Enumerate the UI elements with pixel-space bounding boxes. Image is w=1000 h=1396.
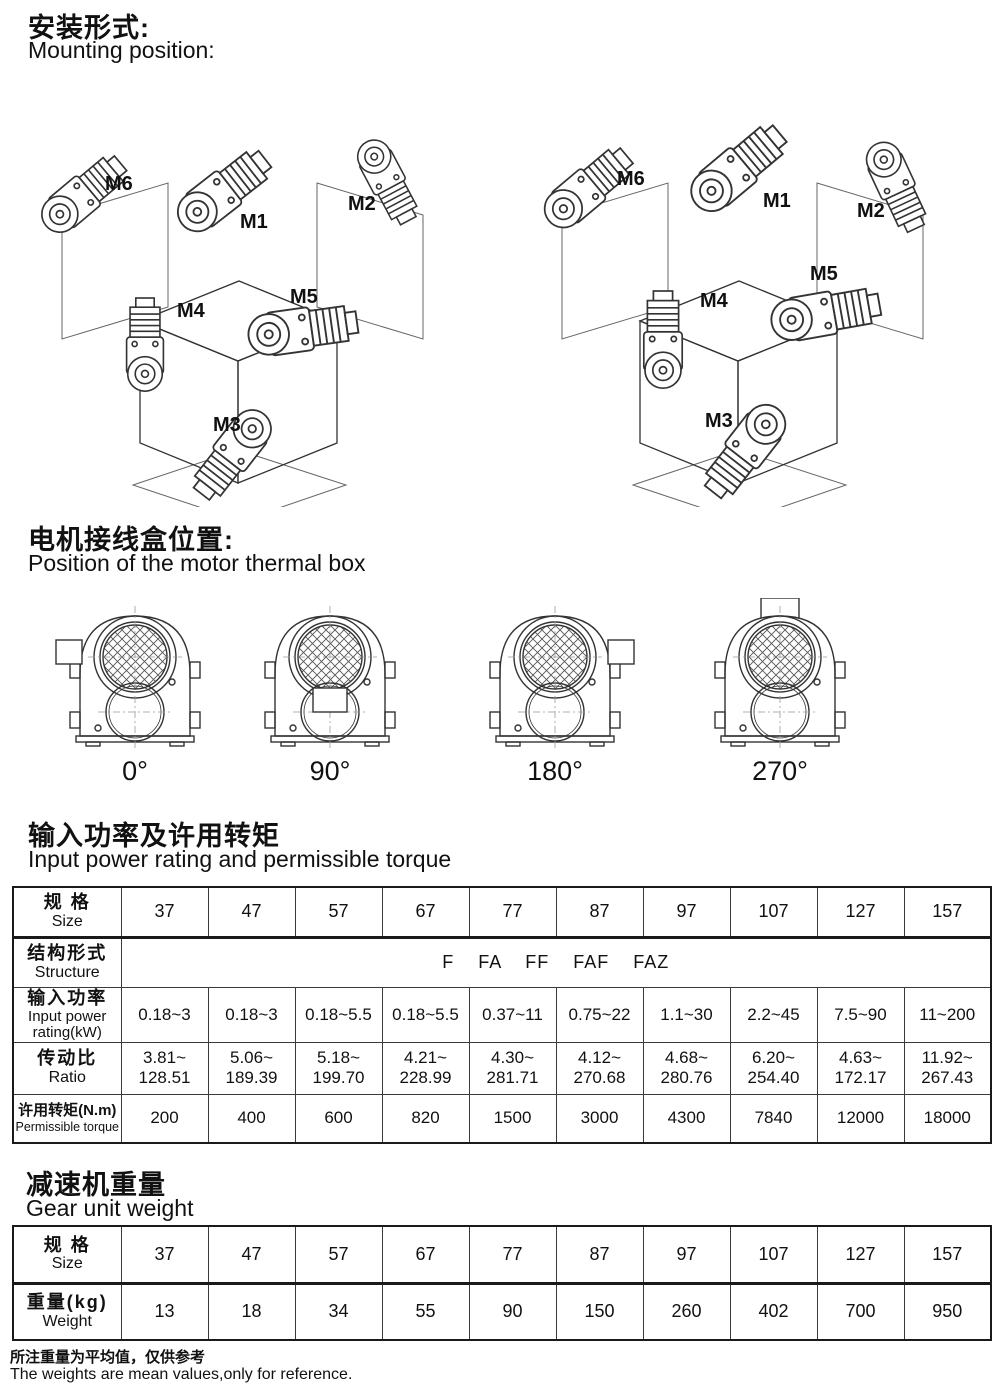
- ratio-cell: 4.63~172.17: [817, 1042, 904, 1094]
- row-header-ratio: 传动比 Ratio: [13, 1042, 121, 1094]
- size-cell: 57: [295, 1226, 382, 1283]
- power-table-title-en: Input power rating and permissible torqu…: [28, 846, 451, 873]
- table-row: 结构形式 Structure F FA FF FAF FAZ: [13, 937, 991, 987]
- weight-cell: 90: [469, 1283, 556, 1340]
- mounting-label-m3: M3: [213, 414, 241, 436]
- mounting-label-m1: M1: [240, 211, 268, 233]
- weight-cell: 402: [730, 1283, 817, 1340]
- motor-view-270: [695, 598, 865, 748]
- footnote-zh: 所注重量为平均值，仅供参考: [10, 1346, 205, 1367]
- size-cell: 57: [295, 887, 382, 937]
- power-cell: 0.37~11: [469, 987, 556, 1042]
- angle-label-180: 180°: [470, 756, 640, 787]
- row-header-size: 规 格 Size: [13, 887, 121, 937]
- row-header-torque: 许用转矩(N.m) Permissible torque: [13, 1094, 121, 1143]
- ratio-cell: 4.21~228.99: [382, 1042, 469, 1094]
- torque-cell: 1500: [469, 1094, 556, 1143]
- terminal-box-icon: [608, 640, 634, 664]
- size-cell: 77: [469, 1226, 556, 1283]
- footnote-en: The weights are mean values,only for ref…: [10, 1366, 352, 1384]
- size-cell: 97: [643, 1226, 730, 1283]
- torque-cell: 7840: [730, 1094, 817, 1143]
- size-cell: 67: [382, 887, 469, 937]
- motor-view-180: [470, 598, 640, 748]
- table-row: 输入功率 Input power rating(kW) 0.18~3 0.18~…: [13, 987, 991, 1042]
- size-cell: 37: [121, 887, 208, 937]
- terminal-box-icon: [56, 640, 82, 664]
- ratio-cell: 4.12~270.68: [556, 1042, 643, 1094]
- size-cell: 47: [208, 887, 295, 937]
- torque-cell: 400: [208, 1094, 295, 1143]
- torque-cell: 600: [295, 1094, 382, 1143]
- mounting-label-m2: M2: [348, 193, 376, 215]
- structure-value: F FA FF FAF FAZ: [121, 937, 991, 987]
- motor-view-0: [50, 598, 220, 748]
- size-cell: 47: [208, 1226, 295, 1283]
- power-cell: 0.18~5.5: [382, 987, 469, 1042]
- power-cell: 0.18~3: [208, 987, 295, 1042]
- size-cell: 37: [121, 1226, 208, 1283]
- size-cell: 107: [730, 887, 817, 937]
- size-cell: 87: [556, 887, 643, 937]
- size-cell: 157: [904, 887, 991, 937]
- ratio-cell: 4.30~281.71: [469, 1042, 556, 1094]
- gearmotor-icon: [127, 298, 164, 391]
- thermal-title-en: Position of the motor thermal box: [28, 550, 366, 577]
- size-cell: 127: [817, 1226, 904, 1283]
- weight-cell: 150: [556, 1283, 643, 1340]
- ratio-cell: 3.81~128.51: [121, 1042, 208, 1094]
- torque-cell: 12000: [817, 1094, 904, 1143]
- weight-cell: 55: [382, 1283, 469, 1340]
- ratio-cell: 5.18~199.70: [295, 1042, 382, 1094]
- row-header-size: 规 格 Size: [13, 1226, 121, 1283]
- mounting-label-m5: M5: [290, 286, 318, 308]
- ratio-cell: 6.20~254.40: [730, 1042, 817, 1094]
- size-cell: 67: [382, 1226, 469, 1283]
- size-cell: 157: [904, 1226, 991, 1283]
- table-row: 许用转矩(N.m) Permissible torque 200 400 600…: [13, 1094, 991, 1143]
- torque-cell: 200: [121, 1094, 208, 1143]
- row-header-structure: 结构形式 Structure: [13, 937, 121, 987]
- mounting-label-m2: M2: [857, 200, 885, 222]
- ratio-cell: 5.06~189.39: [208, 1042, 295, 1094]
- power-cell: 2.2~45: [730, 987, 817, 1042]
- row-header-input-power: 输入功率 Input power rating(kW): [13, 987, 121, 1042]
- table-row: 规 格 Size 37 47 57 67 77 87 97 107 127 15…: [13, 1226, 991, 1283]
- power-cell: 11~200: [904, 987, 991, 1042]
- ratio-cell: 4.68~280.76: [643, 1042, 730, 1094]
- torque-cell: 3000: [556, 1094, 643, 1143]
- mounting-label-m4: M4: [700, 290, 729, 312]
- weight-cell: 18: [208, 1283, 295, 1340]
- torque-cell: 18000: [904, 1094, 991, 1143]
- power-cell: 0.75~22: [556, 987, 643, 1042]
- weight-cell: 950: [904, 1283, 991, 1340]
- weight-table: 规 格 Size 37 47 57 67 77 87 97 107 127 15…: [12, 1225, 992, 1341]
- mounting-label-m6: M6: [617, 168, 645, 190]
- weight-cell: 260: [643, 1283, 730, 1340]
- power-table: 规 格 Size 37 47 57 67 77 87 97 107 127 15…: [12, 886, 992, 1144]
- table-row: 重量(kg) Weight 13 18 34 55 90 150 260 402…: [13, 1283, 991, 1340]
- table-row: 传动比 Ratio 3.81~128.51 5.06~189.39 5.18~1…: [13, 1042, 991, 1094]
- mounting-title-en: Mounting position:: [28, 37, 215, 64]
- size-cell: 87: [556, 1226, 643, 1283]
- weight-cell: 700: [817, 1283, 904, 1340]
- mounting-label-m3: M3: [705, 410, 733, 432]
- power-cell: 0.18~5.5: [295, 987, 382, 1042]
- angle-label-90: 90°: [245, 756, 415, 787]
- motor-view-90: [245, 598, 415, 748]
- terminal-box-icon: [313, 688, 347, 712]
- torque-cell: 820: [382, 1094, 469, 1143]
- power-cell: 1.1~30: [643, 987, 730, 1042]
- size-cell: 77: [469, 887, 556, 937]
- weight-table-title-en: Gear unit weight: [26, 1195, 193, 1222]
- table-row: 规 格 Size 37 47 57 67 77 87 97 107 127 15…: [13, 887, 991, 937]
- angle-label-270: 270°: [695, 756, 865, 787]
- torque-cell: 4300: [643, 1094, 730, 1143]
- gearmotor-icon: [768, 283, 883, 345]
- size-cell: 107: [730, 1226, 817, 1283]
- mounting-label-m4: M4: [177, 300, 206, 322]
- gearmotor-icon: [644, 291, 682, 388]
- size-cell: 127: [817, 887, 904, 937]
- power-cell: 0.18~3: [121, 987, 208, 1042]
- angle-label-0: 0°: [50, 756, 220, 787]
- mounting-label-m1: M1: [763, 190, 791, 212]
- mounting-label-m6: M6: [105, 173, 133, 195]
- mounting-diagram-1: M6 M1 M2 M4 M5 M3: [5, 95, 495, 507]
- row-header-weight: 重量(kg) Weight: [13, 1283, 121, 1340]
- power-cell: 7.5~90: [817, 987, 904, 1042]
- ratio-cell: 11.92~267.43: [904, 1042, 991, 1094]
- weight-cell: 34: [295, 1283, 382, 1340]
- mounting-diagram-2: M6 M1 M2 M4 M5 M3: [505, 95, 995, 507]
- gearmotor-icon: [246, 301, 360, 359]
- weight-cell: 13: [121, 1283, 208, 1340]
- size-cell: 97: [643, 887, 730, 937]
- mounting-label-m5: M5: [810, 263, 838, 285]
